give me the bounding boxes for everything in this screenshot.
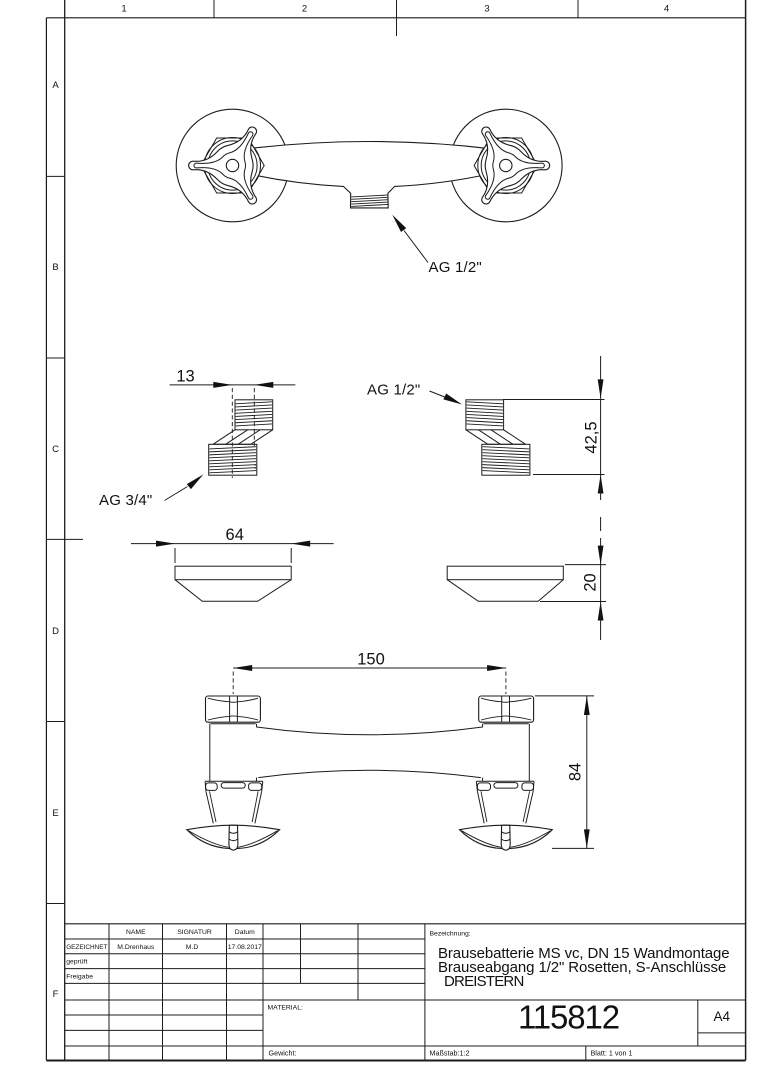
svg-text:Gewicht:: Gewicht: — [269, 1048, 297, 1057]
svg-text:A: A — [52, 80, 59, 91]
svg-text:2: 2 — [302, 3, 307, 14]
svg-text:42,5: 42,5 — [583, 421, 601, 453]
svg-text:17.08.2017: 17.08.2017 — [228, 944, 262, 951]
svg-text:DREISTERN: DREISTERN — [444, 973, 523, 990]
svg-text:150: 150 — [357, 650, 385, 668]
svg-text:C: C — [52, 444, 59, 455]
svg-text:84: 84 — [567, 763, 585, 781]
svg-text:MATERIAL:: MATERIAL: — [268, 1005, 303, 1012]
svg-text:115812: 115812 — [518, 999, 619, 1036]
svg-text:NAME: NAME — [126, 929, 146, 936]
svg-text:M.D: M.D — [186, 944, 199, 951]
svg-text:M.Drenhaus: M.Drenhaus — [117, 944, 155, 951]
svg-text:64: 64 — [226, 526, 244, 544]
svg-text:3: 3 — [484, 3, 489, 14]
svg-text:Datum: Datum — [235, 929, 255, 936]
svg-text:AG 1/2": AG 1/2" — [429, 259, 482, 276]
svg-text:AG 1/2": AG 1/2" — [367, 382, 420, 399]
svg-text:Blatt: 1 von 1: Blatt: 1 von 1 — [591, 1048, 633, 1057]
svg-text:geprüft: geprüft — [66, 959, 87, 966]
svg-text:Maßstab:1:2: Maßstab:1:2 — [430, 1048, 470, 1057]
svg-text:E: E — [52, 808, 58, 819]
svg-text:4: 4 — [664, 3, 669, 14]
svg-text:13: 13 — [176, 368, 194, 386]
svg-text:1: 1 — [121, 3, 126, 14]
svg-text:D: D — [52, 626, 59, 637]
svg-text:AG 3/4": AG 3/4" — [99, 492, 152, 509]
svg-text:GEZEICHNET: GEZEICHNET — [66, 944, 107, 951]
svg-text:A4: A4 — [713, 1009, 730, 1024]
svg-text:F: F — [53, 989, 59, 1000]
svg-text:Bezeichnung:: Bezeichnung: — [430, 931, 471, 938]
svg-text:SIGNATUR: SIGNATUR — [177, 929, 212, 936]
svg-text:Freigabe: Freigabe — [66, 974, 93, 981]
svg-text:20: 20 — [582, 573, 600, 591]
svg-text:B: B — [52, 262, 58, 273]
